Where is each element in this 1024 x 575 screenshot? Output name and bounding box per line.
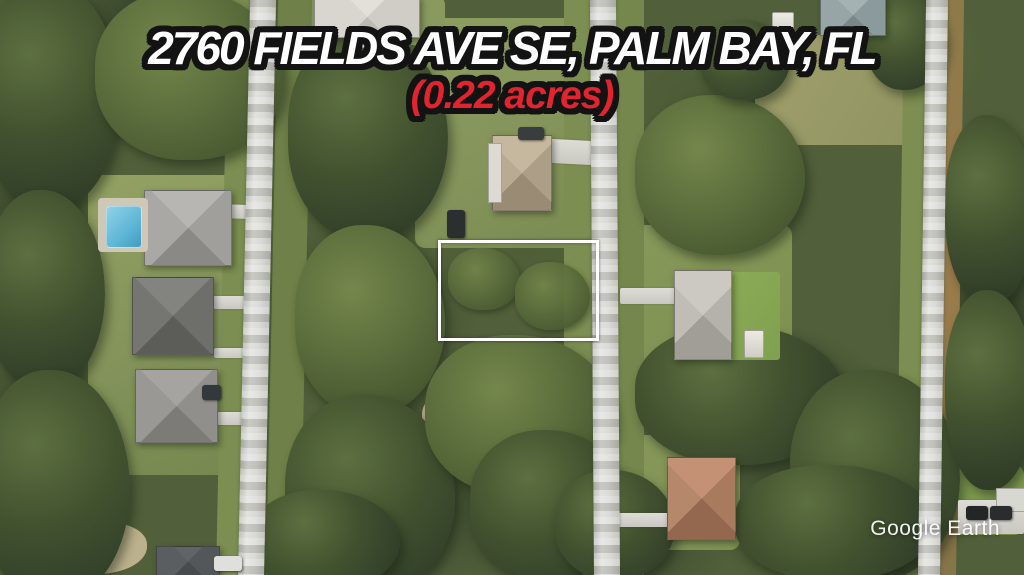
house-right-center: [674, 270, 732, 360]
shed: [772, 12, 794, 38]
driveway: [620, 288, 678, 304]
car-dark: [447, 210, 465, 238]
house-top-right: [820, 0, 886, 36]
house-left-3: [135, 369, 218, 443]
house-bottom-right: [667, 457, 736, 540]
house-left-2: [132, 277, 214, 355]
house-left-1: [144, 190, 232, 266]
tree-cluster: [635, 95, 805, 255]
tree-cluster: [295, 225, 445, 415]
google-earth-watermark: Google Earth: [870, 517, 1000, 541]
trailer: [744, 330, 764, 358]
aerial-map: 2760 FIELDS AVE SE, PALM BAY, FL (0.22 a…: [0, 0, 1024, 575]
house-top-edge-wing: [352, 30, 398, 48]
tree-cluster: [945, 290, 1024, 490]
swimming-pool: [106, 206, 142, 248]
property-boundary-box: [438, 240, 599, 341]
tree-cluster: [288, 30, 448, 240]
car-dark: [202, 385, 221, 400]
house-bottom-edge: [156, 546, 220, 575]
car-dark: [518, 127, 544, 140]
tree-cluster: [945, 115, 1024, 305]
driveway: [616, 513, 671, 527]
house-top-center-garage: [488, 143, 502, 203]
car-white: [214, 556, 242, 571]
